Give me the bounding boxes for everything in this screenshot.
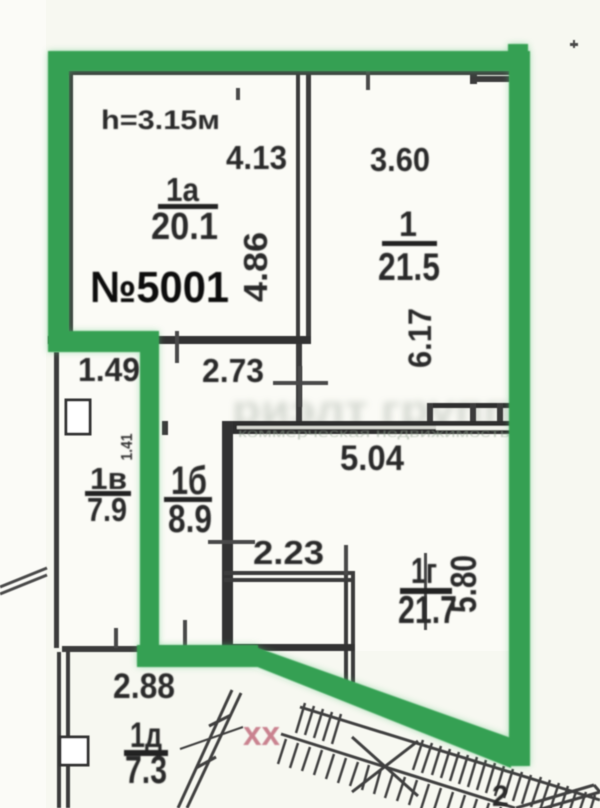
svg-text:1: 1: [399, 205, 417, 244]
svg-text:коммерческая недвижимость: коммерческая недвижимость: [238, 426, 510, 440]
svg-text:4.86: 4.86: [237, 232, 274, 302]
svg-text:8.9: 8.9: [168, 498, 212, 541]
svg-text:хх: хх: [243, 715, 280, 753]
svg-text:2.23: 2.23: [253, 534, 324, 571]
svg-text:1а: 1а: [166, 171, 200, 208]
svg-text:2: 2: [492, 780, 509, 808]
svg-text:6.17: 6.17: [402, 308, 438, 368]
svg-text:1.41: 1.41: [119, 433, 136, 460]
svg-text:1.49: 1.49: [78, 351, 140, 388]
svg-text:5.80: 5.80: [443, 555, 484, 613]
svg-text:2.73: 2.73: [202, 352, 264, 389]
svg-text:№5001: №5001: [90, 263, 229, 312]
svg-text:3.60: 3.60: [370, 141, 430, 178]
svg-text:2.88: 2.88: [113, 667, 175, 706]
svg-text:21.5: 21.5: [378, 246, 440, 289]
svg-text:1г: 1г: [411, 550, 437, 591]
svg-text:7.3: 7.3: [125, 749, 167, 792]
svg-text:5.04: 5.04: [340, 439, 404, 478]
svg-text:1б: 1б: [171, 459, 207, 503]
svg-text:20.1: 20.1: [151, 206, 218, 248]
svg-text:h=3.15м: h=3.15м: [101, 105, 220, 135]
svg-text:4.13: 4.13: [226, 139, 287, 176]
svg-text:7.9: 7.9: [87, 491, 127, 528]
